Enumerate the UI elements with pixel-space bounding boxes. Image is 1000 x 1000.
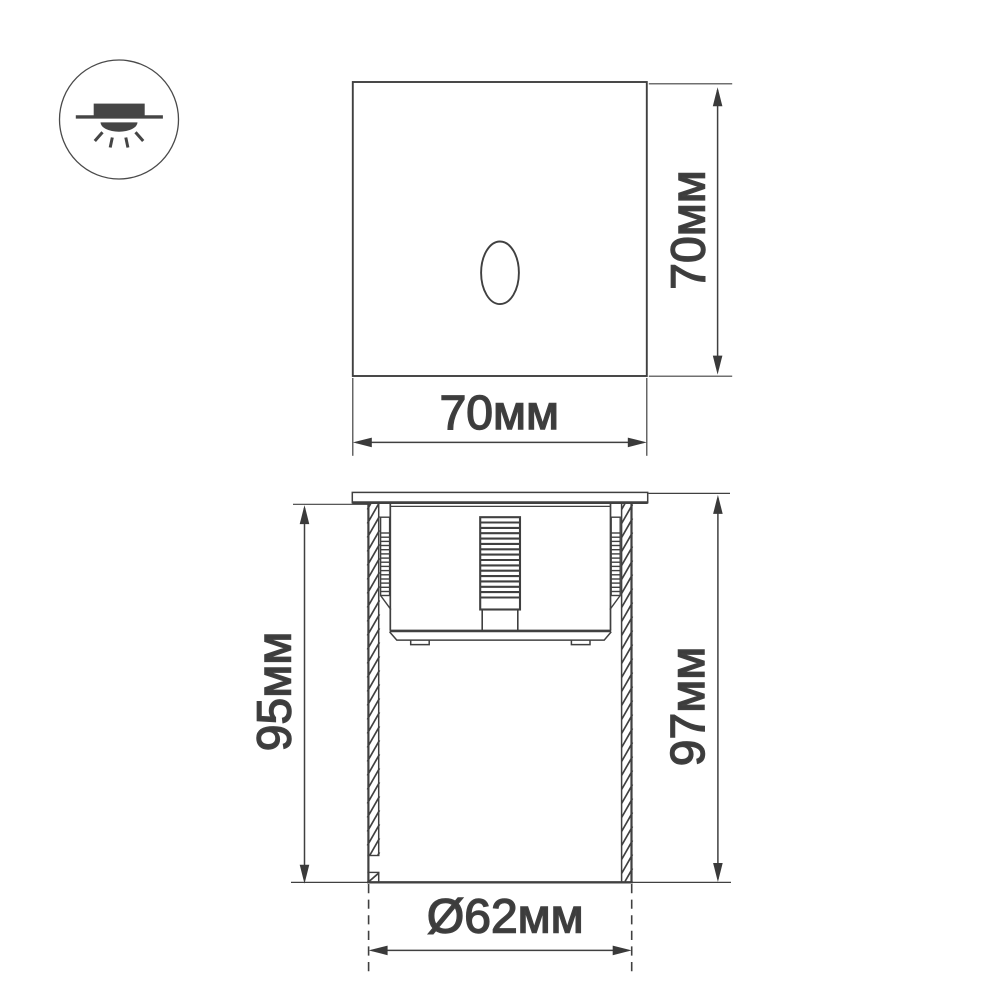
svg-text:97мм: 97мм [662,647,715,766]
svg-text:70мм: 70мм [663,170,716,289]
svg-text:95мм: 95мм [249,632,302,751]
svg-text:70мм: 70мм [440,387,559,440]
svg-text:Ø62мм: Ø62мм [427,891,584,944]
